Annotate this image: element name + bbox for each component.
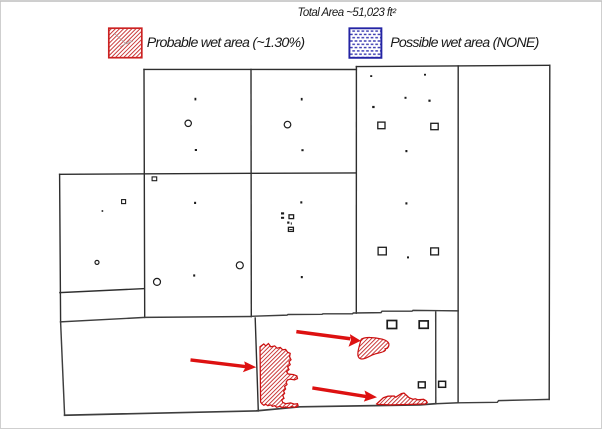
svg-text:Probable wet area (~1.30%): Probable wet area (~1.30%) bbox=[147, 35, 305, 51]
svg-text:Possible wet area (NONE): Possible wet area (NONE) bbox=[390, 35, 538, 51]
svg-text:Total Area ~51,023 ft²: Total Area ~51,023 ft² bbox=[298, 7, 398, 19]
